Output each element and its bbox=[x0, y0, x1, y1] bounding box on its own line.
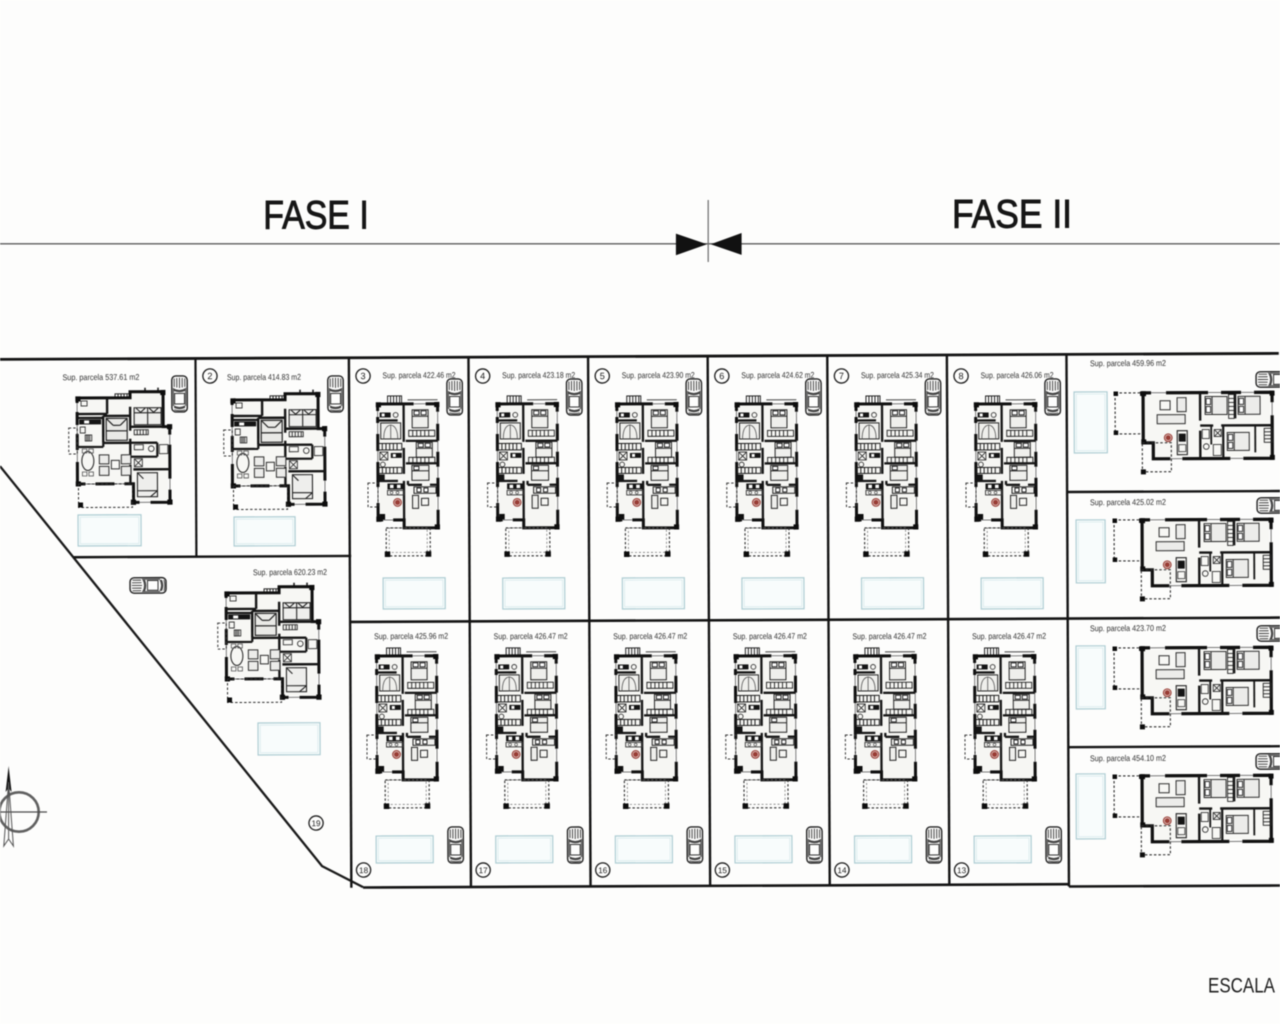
svg-text:Sup. parcela 426.47 m2: Sup. parcela 426.47 m2 bbox=[972, 631, 1046, 641]
svg-text:Sup. parcela 422.46 m2: Sup. parcela 422.46 m2 bbox=[383, 370, 456, 380]
svg-text:Sup. parcela 426.47 m2: Sup. parcela 426.47 m2 bbox=[852, 631, 926, 641]
svg-text:4: 4 bbox=[480, 371, 485, 381]
svg-text:Sup. parcela 537.61 m2: Sup. parcela 537.61 m2 bbox=[62, 372, 139, 382]
svg-text:19: 19 bbox=[311, 819, 321, 828]
svg-text:FASE II: FASE II bbox=[952, 193, 1072, 237]
svg-text:6: 6 bbox=[719, 371, 724, 381]
svg-text:Sup. parcela 426.47 m2: Sup. parcela 426.47 m2 bbox=[613, 631, 687, 641]
svg-text:14: 14 bbox=[837, 866, 847, 875]
svg-text:FASE I: FASE I bbox=[263, 194, 369, 238]
svg-text:ESCALA: ESCALA bbox=[1208, 974, 1276, 998]
svg-text:3: 3 bbox=[360, 371, 365, 381]
svg-text:17: 17 bbox=[479, 866, 489, 875]
svg-text:Sup. parcela 425.02 m2: Sup. parcela 425.02 m2 bbox=[1090, 497, 1166, 507]
svg-text:Sup. parcela 426.47 m2: Sup. parcela 426.47 m2 bbox=[733, 631, 807, 641]
svg-text:Sup. parcela 423.18 m2: Sup. parcela 423.18 m2 bbox=[502, 370, 575, 380]
svg-text:13: 13 bbox=[957, 866, 967, 875]
svg-text:Sup. parcela 423.70 m2: Sup. parcela 423.70 m2 bbox=[1090, 623, 1166, 633]
svg-text:Sup. parcela 454.10 m2: Sup. parcela 454.10 m2 bbox=[1090, 753, 1166, 763]
svg-text:Sup. parcela 426.47 m2: Sup. parcela 426.47 m2 bbox=[494, 631, 568, 641]
svg-text:Sup. parcela 424.62 m2: Sup. parcela 424.62 m2 bbox=[741, 370, 814, 380]
svg-text:Sup. parcela 414.83 m2: Sup. parcela 414.83 m2 bbox=[227, 372, 301, 382]
svg-text:Sup. parcela 425.96 m2: Sup. parcela 425.96 m2 bbox=[374, 631, 448, 641]
svg-text:Sup. parcela 426.06 m2: Sup. parcela 426.06 m2 bbox=[981, 370, 1054, 380]
svg-text:2: 2 bbox=[207, 371, 212, 381]
svg-text:5: 5 bbox=[600, 371, 605, 381]
svg-text:7: 7 bbox=[839, 371, 844, 381]
svg-text:Sup. parcela 425.34 m2: Sup. parcela 425.34 m2 bbox=[861, 370, 934, 380]
svg-text:Sup. parcela 459.96 m2: Sup. parcela 459.96 m2 bbox=[1090, 358, 1166, 368]
svg-text:Sup. parcela 423.90 m2: Sup. parcela 423.90 m2 bbox=[622, 370, 695, 380]
svg-text:16: 16 bbox=[598, 866, 608, 875]
svg-text:Sup. parcela 620.23 m2: Sup. parcela 620.23 m2 bbox=[253, 567, 327, 577]
svg-text:8: 8 bbox=[958, 371, 963, 381]
svg-text:18: 18 bbox=[359, 866, 369, 875]
svg-text:15: 15 bbox=[718, 866, 728, 875]
